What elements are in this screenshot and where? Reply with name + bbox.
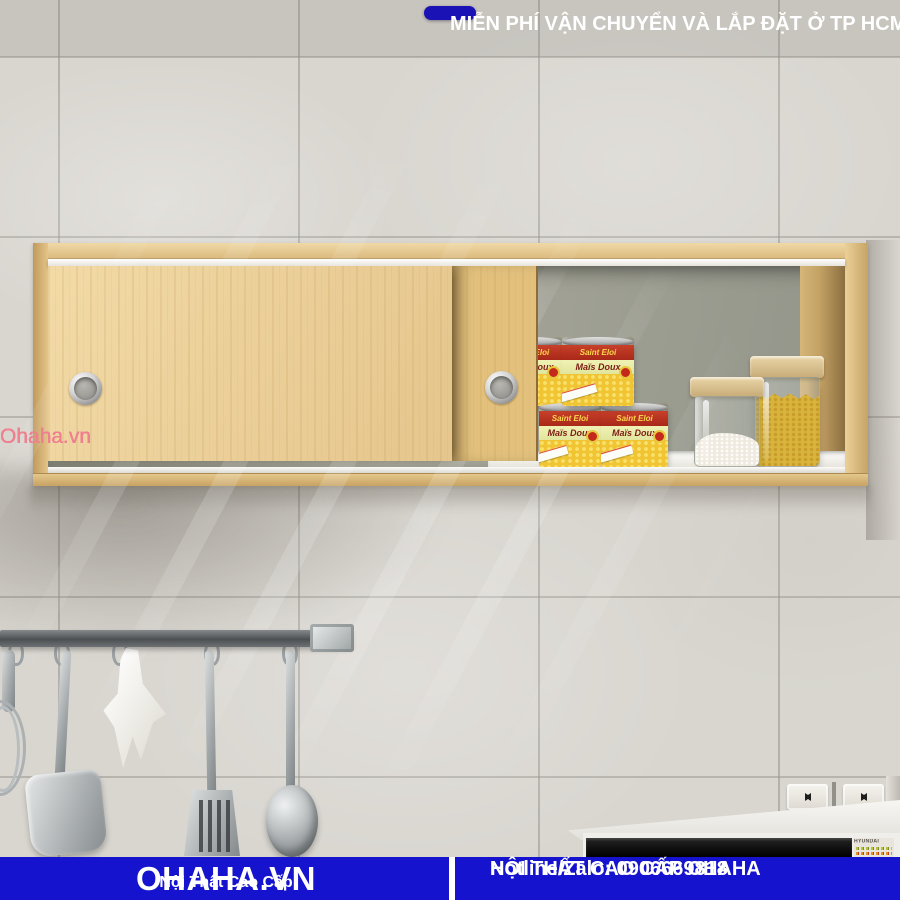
microwave-brand-label: HYUNDAI — [854, 839, 879, 844]
microwave-led-row — [856, 852, 892, 855]
footer-brand-group: OHAHA.VN Nội Thất Cao Cấp — [0, 857, 452, 900]
footer-divider — [449, 857, 455, 900]
cabinet-shadow-under — [30, 486, 870, 512]
sliding-rail-top — [48, 259, 845, 266]
watermark-text: Ohaha.vn — [0, 425, 91, 449]
door-handle-right — [485, 371, 518, 404]
free-shipping-text: MIỄN PHÍ VẬN CHUYỂN VÀ LẮP ĐẶT Ở TP HCM — [450, 13, 900, 36]
slotted-turner — [184, 790, 240, 856]
serving-spoon — [266, 785, 318, 857]
corn-can: Saint Eloi Maïs Doux — [562, 337, 634, 406]
turner-slots — [194, 800, 230, 852]
door-handle-left — [69, 372, 102, 405]
free-shipping-banner: MIỄN PHÍ VẬN CHUYỂN VÀ LẮP ĐẶT Ở TP HCM — [424, 6, 476, 20]
cabinet-top-frame — [33, 243, 868, 259]
sliding-rail-bottom — [48, 467, 845, 473]
footer-hotline: Hotline/Zalo: 0906669818 — [490, 859, 728, 879]
spoon-handle — [286, 650, 295, 790]
utensil-rail-end-cap — [310, 624, 354, 652]
can-brand-label: Saint Eloi — [616, 414, 652, 423]
small-jar-lid — [690, 377, 764, 397]
microwave-led-row — [856, 847, 892, 850]
can-name-label: Maïs Doux — [575, 362, 620, 372]
tall-jar-lid — [750, 356, 824, 378]
can-badge — [619, 366, 632, 379]
cabinet-shadow-right — [866, 240, 900, 540]
product-photo-stage: Saint Eloi Maïs Doux Saint Eloi Maïs Dou… — [0, 0, 900, 900]
door-handle-recess — [74, 377, 97, 400]
can-brand-label: Saint Eloi — [552, 414, 588, 423]
footer-tagline: Nội Thất Cao Cấp — [159, 866, 292, 892]
outlet-slot — [805, 793, 811, 801]
cabinet-bottom-frame — [33, 473, 868, 486]
corn-can-brand-band: Saint Eloi — [562, 345, 634, 360]
can-badge — [547, 366, 560, 379]
can-brand-label: Saint Eloi — [580, 348, 616, 357]
power-outlet — [787, 784, 828, 810]
microwave-display-glass — [586, 838, 852, 857]
outlet-slot — [861, 793, 867, 801]
utensil-rail — [0, 630, 352, 647]
flat-ladle — [24, 768, 108, 857]
footer-banner: OHAHA.VN Nội Thất Cao Cấp NỘI THẤT CAO C… — [0, 857, 900, 900]
microwave-control-panel: HYUNDAI — [854, 838, 894, 857]
door-handle-recess — [490, 376, 513, 399]
watermark-row: Ohaha.vn Ohaha.vn Ohaha.vn Ohaha.vn Ohah… — [0, 424, 900, 450]
microwave-front: HYUNDAI — [583, 833, 900, 857]
